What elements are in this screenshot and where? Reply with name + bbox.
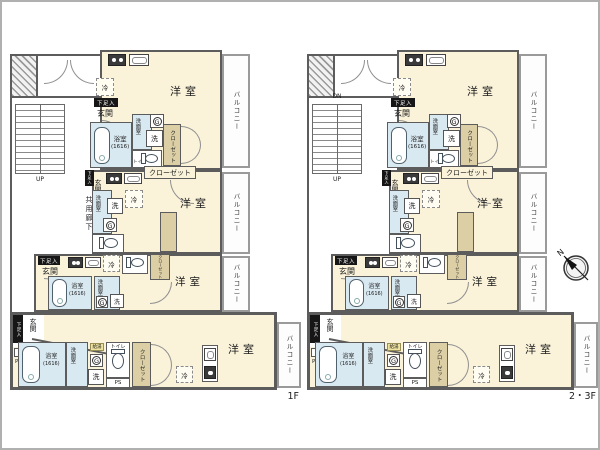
washing-machine-box: 洗 <box>404 198 420 214</box>
toilet-icon <box>409 353 421 369</box>
stove-icon <box>204 366 216 379</box>
bathtub-icon <box>349 279 364 307</box>
washing-machine-box: 洗 <box>88 369 104 385</box>
washroom-label: 洗面室 <box>393 279 399 296</box>
floorplan-canvas: UP 共用廊下 冷 下足入 玄関 浴室(1616) 洗面室 G 洗 トイレ クロ… <box>0 0 600 450</box>
kitchen-sink-icon <box>426 54 446 66</box>
bath-label: 浴室(1616) <box>340 354 357 368</box>
shoe-cabinet-tag: 下足入 <box>85 170 94 186</box>
closet-label-box: クローゼット <box>144 166 196 179</box>
western-room-label: 洋室 <box>477 198 507 211</box>
refrigerator-box: 冷 <box>176 366 193 383</box>
shoe-cabinet-tag: 下足入 <box>382 170 391 186</box>
balcony: バルコニー <box>519 256 547 312</box>
stove-icon <box>106 173 122 184</box>
bath-label: 浴室(1616) <box>69 284 86 298</box>
bathtub-icon <box>94 127 110 164</box>
refrigerator-box: 冷 <box>96 78 114 96</box>
balcony: バルコニー <box>222 54 250 168</box>
water-heater-icon: G <box>96 296 108 308</box>
water-heater-tag: 給湯 <box>90 343 104 351</box>
refrigerator-box: 冷 <box>103 255 120 272</box>
closet-label: クローゼット <box>152 255 168 279</box>
balcony: バルコニー <box>519 54 547 168</box>
washroom-label: 洗面室 <box>69 347 75 364</box>
stove-icon <box>403 173 419 184</box>
washroom-label: 洗面室 <box>96 279 102 296</box>
balcony: バルコニー <box>222 172 250 254</box>
pillar <box>160 212 177 252</box>
washing-machine-box: 洗 <box>107 198 123 214</box>
pillar <box>457 212 474 252</box>
shoe-cabinet-tag: 下足入 <box>94 98 118 107</box>
balcony: バルコニー <box>222 256 250 312</box>
stove-icon <box>501 366 513 379</box>
western-room-label: 洋室 <box>467 86 497 99</box>
floor-label: 1F <box>235 392 299 403</box>
entrance-label: 玄関 <box>326 318 334 332</box>
stairs <box>15 104 65 174</box>
toilet-icon <box>401 238 415 248</box>
balcony: バルコニー <box>519 172 547 254</box>
shoe-cabinet-tag: 下足入 <box>38 256 60 265</box>
western-room-label: 洋室 <box>228 344 258 357</box>
kitchen-sink-icon <box>124 173 142 184</box>
toilet-tank-icon <box>438 153 443 164</box>
pipe-space-box: PS <box>403 378 427 388</box>
washroom-label: 洗面室 <box>366 347 372 364</box>
water-heater-icon: G <box>150 114 164 128</box>
closet-label: クローゼット <box>166 128 178 164</box>
washing-machine-box: 洗 <box>443 130 460 147</box>
toilet-tank-icon <box>423 257 428 268</box>
toilet-icon <box>131 258 144 267</box>
closet-label: クローゼット <box>432 345 445 385</box>
wall-hatch-block <box>10 54 38 98</box>
stove-icon <box>365 257 380 268</box>
western-room-label: 洋室 <box>525 344 555 357</box>
toilet-icon <box>145 154 158 163</box>
floorplan-1f: UP 共用廊下 冷 下足入 玄関 浴室(1616) 洗面室 G 洗 トイレ クロ… <box>10 48 304 408</box>
washroom-label: 洗面室 <box>134 118 140 135</box>
toilet-tank-icon <box>141 153 146 164</box>
washing-machine-box: 洗 <box>407 294 421 308</box>
shoe-cabinet-tag: 下足入 <box>391 98 415 107</box>
bathtub-icon <box>319 346 337 383</box>
toilet-tank-icon <box>99 237 104 249</box>
bathtub-icon <box>22 346 40 383</box>
bath-label: 浴室(1616) <box>408 136 426 151</box>
entrance-label: 玄関 <box>339 267 355 276</box>
toilet-icon <box>428 258 441 267</box>
kitchen-sink-icon <box>85 257 101 268</box>
washing-machine-box: 洗 <box>385 369 401 385</box>
compass-icon: N <box>555 246 595 286</box>
entrance-label: 玄関 <box>42 267 58 276</box>
washing-machine-box: 洗 <box>146 130 163 147</box>
bath-label: 浴室(1616) <box>43 354 60 368</box>
closet-label-box: クローゼット <box>441 166 493 179</box>
water-heater-icon: G <box>447 114 461 128</box>
stove-icon <box>108 54 126 66</box>
toilet-tank-icon <box>396 237 401 249</box>
water-heater-icon: G <box>400 218 414 232</box>
entrance-label: 玄関 <box>29 318 37 332</box>
kitchen-sink-icon <box>129 54 149 66</box>
western-room-label: 洋室 <box>472 276 501 288</box>
western-room-label: 洋室 <box>170 86 200 99</box>
stair-bottom-label: UP <box>315 176 359 185</box>
western-room-label: 洋室 <box>180 198 210 211</box>
water-heater-icon: G <box>393 296 405 308</box>
kitchen-sink-icon <box>382 257 398 268</box>
stove-icon <box>68 257 83 268</box>
kitchen-sink-icon <box>204 348 216 361</box>
stairs <box>312 104 362 174</box>
western-room-label: 洋室 <box>175 276 204 288</box>
entrance-label: 玄関 <box>394 109 410 118</box>
refrigerator-box: 冷 <box>393 78 411 96</box>
floor-label: 2・3F <box>532 392 596 403</box>
stove-icon <box>405 54 423 66</box>
bath-label: 浴室(1616) <box>366 284 383 298</box>
closet-label: クローゼット <box>463 128 475 164</box>
washroom-label: 洗面室 <box>94 195 100 212</box>
toilet-tank-icon <box>126 257 131 268</box>
floorplan-2-3f: DN UP 冷 下足入 玄関 浴室(1616) 洗面室 G 洗 トイレ クローゼ… <box>307 48 600 408</box>
bathtub-icon <box>52 279 67 307</box>
closet-label: クローゼット <box>449 255 465 279</box>
water-heater-icon: G <box>387 354 400 367</box>
refrigerator-box: 冷 <box>422 190 440 208</box>
washroom-label: 洗面室 <box>391 195 397 212</box>
stair-top-label: DN <box>315 93 359 102</box>
kitchen-sink-icon <box>501 348 513 361</box>
toilet-icon <box>112 353 124 369</box>
toilet-tank-icon <box>111 349 125 354</box>
refrigerator-box: 冷 <box>473 366 490 383</box>
wall-hatch-block <box>307 54 335 98</box>
shoe-cabinet-tag: 下足入 <box>310 315 320 343</box>
washroom-label: 洗面室 <box>431 118 437 135</box>
kitchen-sink-icon <box>421 173 439 184</box>
balcony: バルコニー <box>277 322 301 388</box>
bath-label: 浴室(1616) <box>111 136 129 151</box>
shoe-cabinet-tag: 下足入 <box>13 315 23 343</box>
refrigerator-box: 冷 <box>400 255 417 272</box>
closet-label: クローゼット <box>135 345 148 385</box>
washing-machine-box: 洗 <box>110 294 124 308</box>
toilet-icon <box>104 238 118 248</box>
water-heater-icon: G <box>90 354 103 367</box>
balcony: バルコニー <box>574 322 598 388</box>
stair-bottom-label: UP <box>18 176 62 185</box>
shoe-cabinet-tag: 下足入 <box>335 256 357 265</box>
toilet-tank-icon <box>408 349 422 354</box>
water-heater-icon: G <box>103 218 117 232</box>
toilet-icon <box>442 154 455 163</box>
bathtub-icon <box>391 127 407 164</box>
refrigerator-box: 冷 <box>125 190 143 208</box>
entrance-label: 玄関 <box>97 109 113 118</box>
water-heater-tag: 給湯 <box>387 343 401 351</box>
pipe-space-box: PS <box>106 378 130 388</box>
